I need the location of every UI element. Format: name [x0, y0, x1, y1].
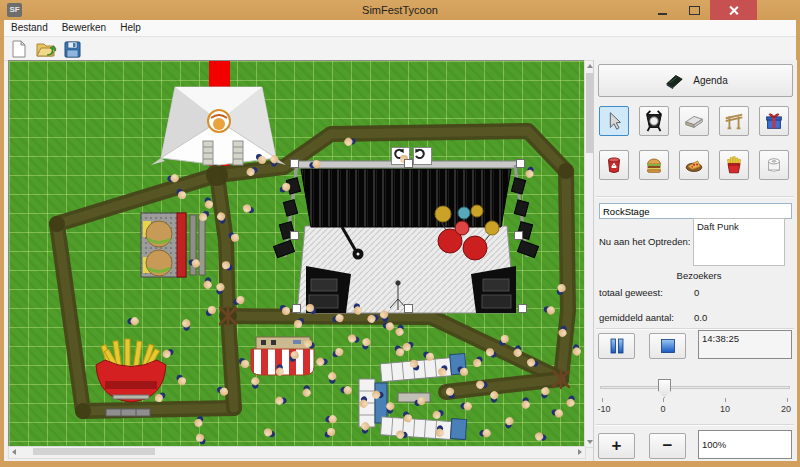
- performer-item[interactable]: Daft Punk: [697, 221, 781, 232]
- visitor: [325, 427, 337, 439]
- tool-select-cursor[interactable]: [599, 106, 629, 136]
- agenda-button[interactable]: Agenda: [598, 64, 793, 97]
- window-content: BestandBewerkenHelp: [4, 20, 796, 461]
- zoom-in-button[interactable]: +: [598, 433, 635, 459]
- average-visitors-value: 0.0: [694, 312, 707, 323]
- festival-map-canvas[interactable]: [8, 60, 585, 447]
- tool-stage-ramp[interactable]: [679, 106, 709, 136]
- time-display: 14:38:25: [698, 330, 792, 359]
- visitor: [306, 303, 316, 313]
- stop-button[interactable]: [649, 333, 686, 359]
- divider: [596, 424, 794, 426]
- menu-help[interactable]: Help: [113, 20, 148, 33]
- selection-handle[interactable]: [292, 304, 301, 313]
- tool-fries[interactable]: [719, 150, 749, 180]
- average-visitors-label: gemiddeld aantal:: [599, 312, 674, 323]
- open-button[interactable]: [35, 39, 55, 59]
- visitor: [256, 155, 266, 165]
- visitor: [280, 182, 292, 194]
- fries-bench[interactable]: [106, 409, 150, 416]
- stage-ramp-icon: [683, 110, 705, 132]
- fries-icon: [723, 154, 745, 176]
- selection-handle[interactable]: [290, 159, 299, 168]
- pause-icon: [609, 338, 625, 354]
- gift-icon: [763, 110, 785, 132]
- burger-stand[interactable]: [141, 213, 186, 277]
- control-panel: Agenda: [593, 60, 797, 461]
- visitor: [471, 356, 483, 368]
- stop-icon: [660, 338, 676, 354]
- slider-thumb[interactable]: [658, 379, 671, 398]
- selection-handle[interactable]: [404, 304, 413, 313]
- visitor: [485, 346, 497, 358]
- now-performing-label: Nu aan het Optreden:: [599, 236, 690, 247]
- selection-handle[interactable]: [514, 231, 523, 240]
- stage-lights-right: [511, 178, 538, 258]
- visitor: [175, 375, 187, 387]
- visitor: [195, 432, 207, 444]
- maximize-icon: [689, 6, 700, 15]
- stage-name-input[interactable]: [599, 203, 792, 219]
- agenda-label: Agenda: [693, 75, 727, 86]
- vertical-scroll-thumb[interactable]: [586, 73, 593, 153]
- spotlight-icon: [643, 110, 665, 132]
- scroll-left-icon: [12, 449, 16, 455]
- visitor: [280, 306, 290, 316]
- save-icon: [62, 39, 82, 59]
- agenda-book-icon: [663, 71, 685, 91]
- divider: [596, 196, 794, 198]
- minimize-button[interactable]: [648, 0, 676, 21]
- entrance-tent[interactable]: [151, 87, 286, 165]
- minimize-icon: [658, 13, 667, 15]
- toolbar: [4, 37, 796, 61]
- map-horizontal-scrollbar[interactable]: [8, 446, 586, 459]
- tool-pizza[interactable]: [679, 150, 709, 180]
- pizza-icon: [683, 154, 705, 176]
- visitor: [153, 391, 165, 403]
- new-file-icon: [9, 39, 29, 59]
- toilet-paper-icon: [763, 154, 785, 176]
- visitor: [207, 306, 217, 316]
- speed-slider[interactable]: -10 0 10 20: [600, 378, 790, 418]
- menu-bewerken[interactable]: Bewerken: [55, 20, 113, 33]
- app-window: SF SimFestTycoon BestandBewerkenHelp: [0, 0, 800, 467]
- trash-can-icon: [603, 154, 625, 176]
- visitor: [303, 337, 315, 349]
- visitor: [228, 232, 240, 244]
- slider-tick-10: 10: [720, 404, 730, 414]
- rotate-right-button[interactable]: [413, 147, 432, 165]
- tool-gate-frame[interactable]: [719, 106, 749, 136]
- selection-handle[interactable]: [518, 304, 527, 313]
- tool-burger[interactable]: [639, 150, 669, 180]
- visitor: [239, 359, 249, 369]
- slider-track[interactable]: [600, 386, 790, 389]
- title-bar[interactable]: SF SimFestTycoon: [0, 0, 800, 20]
- visitor: [198, 211, 208, 221]
- visitor: [221, 259, 233, 271]
- zoom-level-display: 100%: [698, 430, 792, 459]
- speaker-right: [471, 266, 516, 313]
- selection-handle[interactable]: [290, 231, 299, 240]
- visitor: [457, 366, 469, 378]
- visitor: [175, 189, 187, 201]
- horizontal-scroll-thumb[interactable]: [33, 448, 155, 455]
- now-performing-listbox[interactable]: Daft Punk: [693, 218, 785, 266]
- main-stage[interactable]: [273, 161, 538, 313]
- open-folder-icon: [35, 39, 57, 59]
- maximize-button[interactable]: [680, 0, 708, 21]
- simfest-logo: [208, 110, 230, 132]
- total-visitors-value: 0: [694, 287, 699, 298]
- slider-tick-min: -10: [597, 404, 610, 414]
- menu-bestand[interactable]: Bestand: [4, 20, 55, 33]
- selection-handle[interactable]: [516, 159, 525, 168]
- pause-button[interactable]: [598, 333, 635, 359]
- visitor: [499, 334, 511, 346]
- scroll-right-icon: [578, 449, 582, 455]
- gate-frame-icon: [723, 110, 745, 132]
- tool-gift[interactable]: [759, 106, 789, 136]
- close-button[interactable]: [710, 0, 757, 21]
- zoom-out-button[interactable]: −: [649, 433, 686, 459]
- slider-tick-max: 20: [781, 404, 791, 414]
- visitors-header: Bezoekers: [654, 270, 744, 281]
- visitor: [293, 318, 303, 328]
- selection-handle[interactable]: [404, 159, 413, 168]
- close-icon: [728, 5, 739, 16]
- tool-toilet-paper[interactable]: [759, 150, 789, 180]
- new-file-button[interactable]: [9, 39, 29, 59]
- burger-icon: [643, 154, 665, 176]
- rotate-right-icon: [414, 148, 427, 160]
- menu-bar: BestandBewerkenHelp: [4, 20, 796, 37]
- save-button[interactable]: [62, 39, 82, 59]
- total-visitors-label: totaal geweest:: [599, 287, 663, 298]
- map-drawing: [9, 61, 584, 446]
- tool-spotlight[interactable]: [639, 106, 669, 136]
- cursor-icon: [603, 110, 625, 132]
- slider-tick-0: 0: [660, 404, 665, 414]
- stage-curtain: [301, 169, 511, 227]
- tool-trash-can[interactable]: [599, 150, 629, 180]
